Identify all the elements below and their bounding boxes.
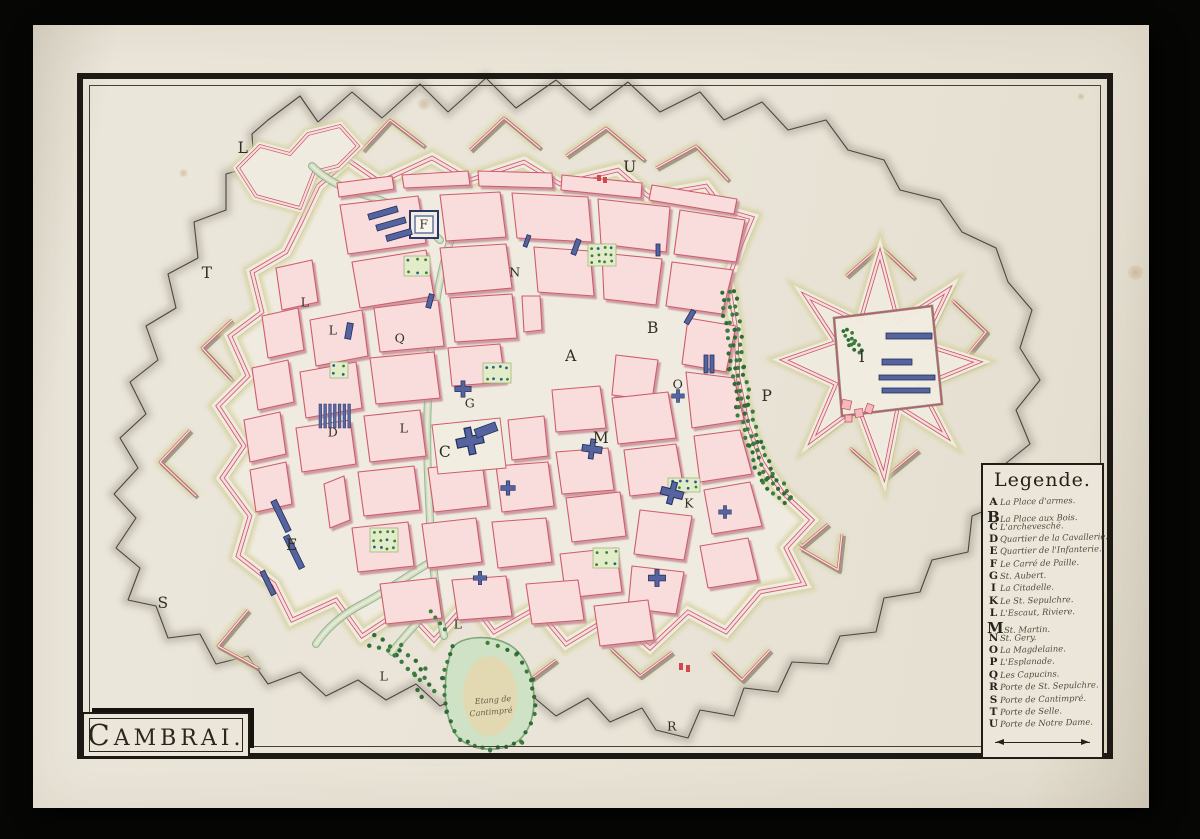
legend-label: Porte de Selle.	[1000, 706, 1062, 716]
legend-letter: I	[987, 582, 1000, 594]
legend-letter: N	[987, 632, 1000, 644]
legend-label: St. Aubert.	[1000, 571, 1046, 581]
legend-label: Porte de Cantimpré.	[1000, 693, 1086, 704]
legend-letter: T	[987, 706, 1000, 718]
legend-divider-arrow	[995, 742, 1090, 743]
legend-row: P L'Esplanade.	[987, 656, 1098, 668]
legend-row: B La Place aux Bois.	[987, 508, 1098, 520]
citadel	[784, 254, 981, 479]
legend-label: Le Carré de Paille.	[1000, 558, 1079, 569]
legend-label: Le St. Sepulchre.	[1000, 595, 1074, 606]
legend-letter: O	[987, 644, 1000, 656]
legend-label: La Place d'armes.	[1000, 496, 1076, 507]
legend-letter: U	[987, 718, 1000, 730]
legend-letter: C	[987, 521, 1000, 533]
legend-letter: D	[987, 533, 1000, 545]
title-cartouche: CAMBRAI.	[82, 712, 250, 758]
legend-label: Quartier de l'Infanterie.	[1000, 545, 1102, 556]
legend-title: Legende.	[987, 469, 1098, 491]
legend-letter: P	[987, 656, 1000, 668]
legend-label: L'Esplanade.	[1000, 657, 1055, 667]
legend-letter: A	[987, 496, 1000, 508]
legend-label: Porte de St. Sepulchre.	[1000, 681, 1099, 692]
legend-label: L'Escaut, Riviere.	[1000, 607, 1075, 618]
legend-letter: K	[987, 595, 1000, 607]
legend-row: A La Place d'armes.	[987, 496, 1098, 508]
map-title: CAMBRAI.	[88, 718, 245, 752]
legend-row: F Le Carré de Paille.	[987, 558, 1098, 570]
title-cartouche-inner: CAMBRAI.	[89, 718, 243, 752]
legend-label: L'archevesché.	[1000, 521, 1064, 531]
legend-row: O La Magdelaine.	[987, 644, 1098, 656]
legend-label: La Citadelle.	[1000, 583, 1054, 593]
legend-row: E Quartier de l'Infanterie.	[987, 545, 1098, 557]
legend-label: Porte de Notre Dame.	[1000, 718, 1093, 729]
legend-row: U Porte de Notre Dame.	[987, 718, 1098, 730]
legend-row: S Porte de Cantimpré.	[987, 694, 1098, 706]
legend-row: G St. Aubert.	[987, 570, 1098, 582]
legend-letter: S	[987, 694, 1000, 706]
legend-label: La Magdelaine.	[1000, 644, 1066, 655]
legend-letter: R	[987, 681, 1000, 693]
legend-row: I La Citadelle.	[987, 582, 1098, 594]
legend-letter: E	[987, 545, 1000, 557]
legend-panel: Legende. A La Place d'armes. B La Place …	[981, 463, 1104, 759]
legend-label: St. Gery.	[1000, 633, 1037, 643]
legend-row: L L'Escaut, Riviere.	[987, 607, 1098, 619]
legend-row: M St. Martin.	[987, 619, 1098, 631]
legend-row: R Porte de St. Sepulchre.	[987, 681, 1098, 693]
legend-rows: A La Place d'armes. B La Place aux Bois.…	[987, 496, 1098, 731]
legend-letter: Q	[987, 669, 1000, 681]
legend-letter: F	[987, 558, 1000, 570]
legend-row: K Le St. Sepulchre.	[987, 595, 1098, 607]
cavalry-stables	[319, 404, 351, 428]
legend-letter: L	[987, 607, 1000, 619]
legend-label: Quartier de la Cavallerie.	[1000, 532, 1108, 544]
legend-label: Les Capucins.	[1000, 669, 1060, 679]
legend-letter: G	[987, 570, 1000, 582]
